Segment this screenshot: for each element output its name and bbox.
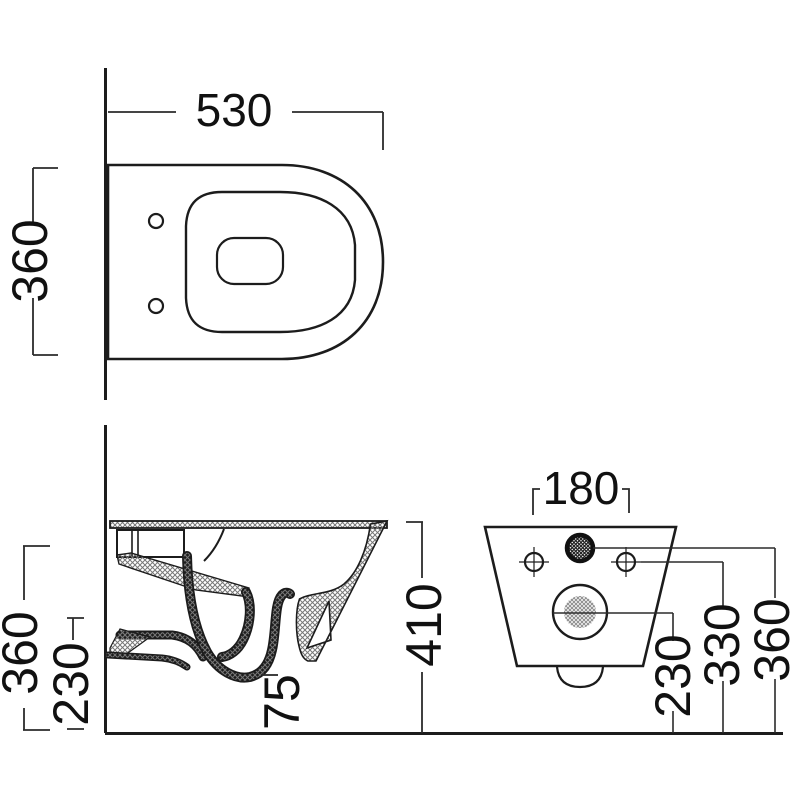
flush-opening [217, 238, 283, 284]
water-inlet-hole [567, 535, 593, 561]
dimension-label-side-lower-depth: 230 [43, 642, 99, 725]
dimension-label-plan-depth: 360 [2, 219, 58, 302]
hinge-hole-top [149, 214, 163, 228]
rim-section-band [110, 521, 387, 528]
dimension-outlet-offset: 75 [254, 674, 310, 730]
hinge-hole-bottom [149, 299, 163, 313]
dimension-fixing-spacing: 180 [533, 462, 629, 515]
dimension-label-outlet-height: 230 [645, 634, 701, 717]
toilet-dimension-drawing: 530 360 360 [0, 0, 800, 800]
outlet-hole [553, 585, 607, 639]
dimension-label-outlet-offset: 75 [254, 674, 310, 730]
dimension-label-side-height: 410 [396, 583, 452, 666]
technical-drawing: 530 360 360 [0, 0, 800, 800]
dimension-label-inlet-height: 360 [744, 598, 800, 681]
dimension-label-plan-width: 530 [196, 84, 273, 136]
dimension-label-side-depth: 360 [0, 611, 48, 694]
dimension-label-fixing-spacing: 180 [543, 462, 620, 514]
dimension-label-fixing-height: 330 [694, 603, 750, 686]
